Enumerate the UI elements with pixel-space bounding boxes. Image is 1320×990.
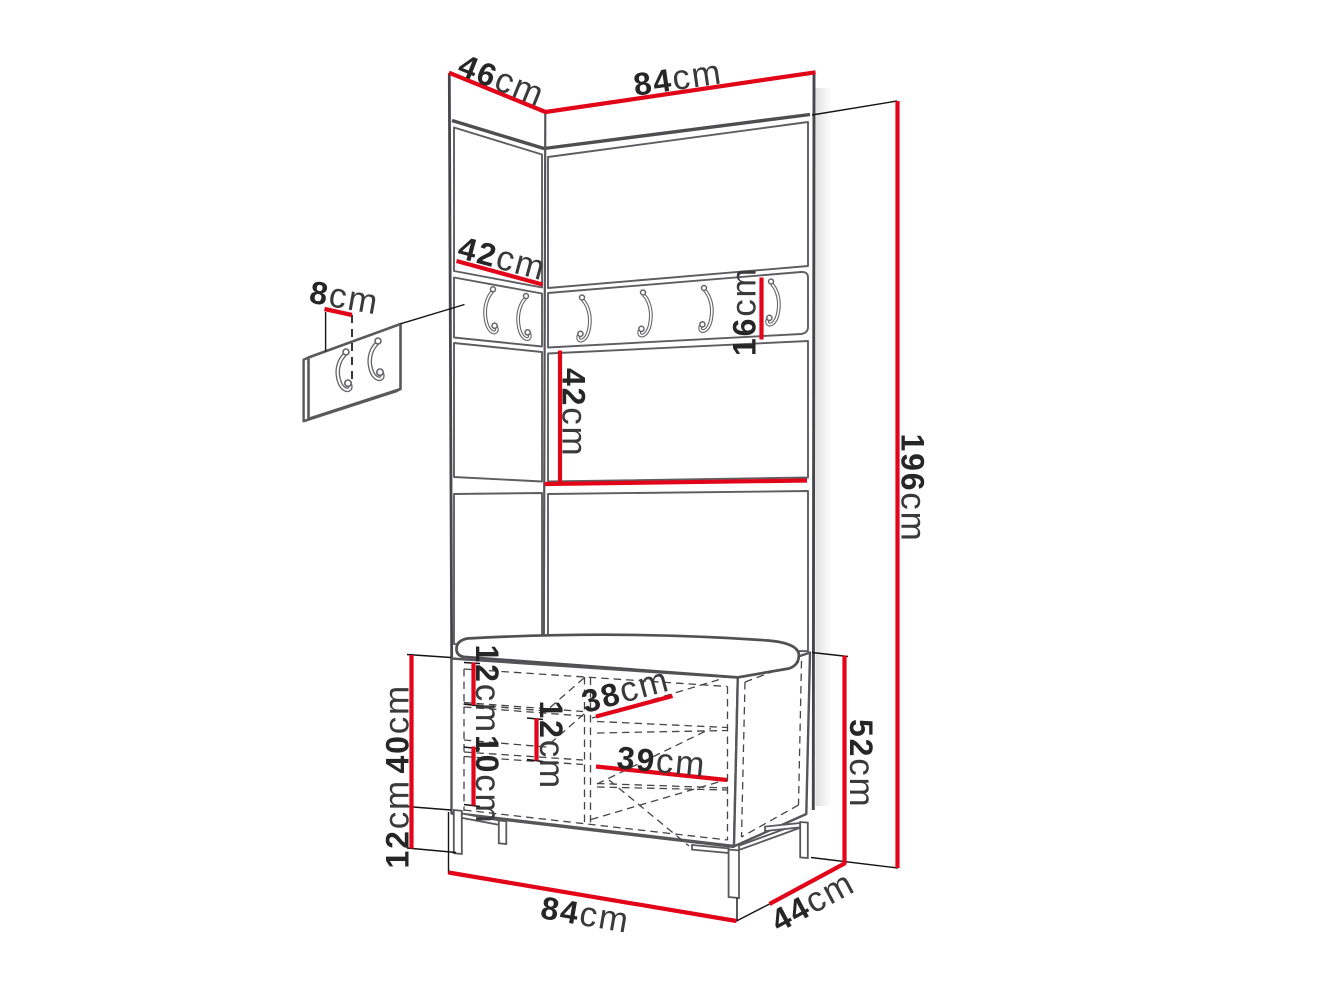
svg-text:52cm: 52cm [842, 719, 881, 808]
svg-text:40cm: 40cm [378, 684, 417, 773]
svg-text:16cm: 16cm [725, 267, 764, 356]
svg-text:12cm: 12cm [532, 701, 571, 790]
svg-text:10cm: 10cm [468, 735, 507, 824]
svg-text:12cm: 12cm [468, 645, 507, 734]
svg-text:196cm: 196cm [894, 434, 933, 543]
svg-text:12cm: 12cm [378, 779, 417, 868]
svg-text:42cm: 42cm [555, 368, 594, 457]
